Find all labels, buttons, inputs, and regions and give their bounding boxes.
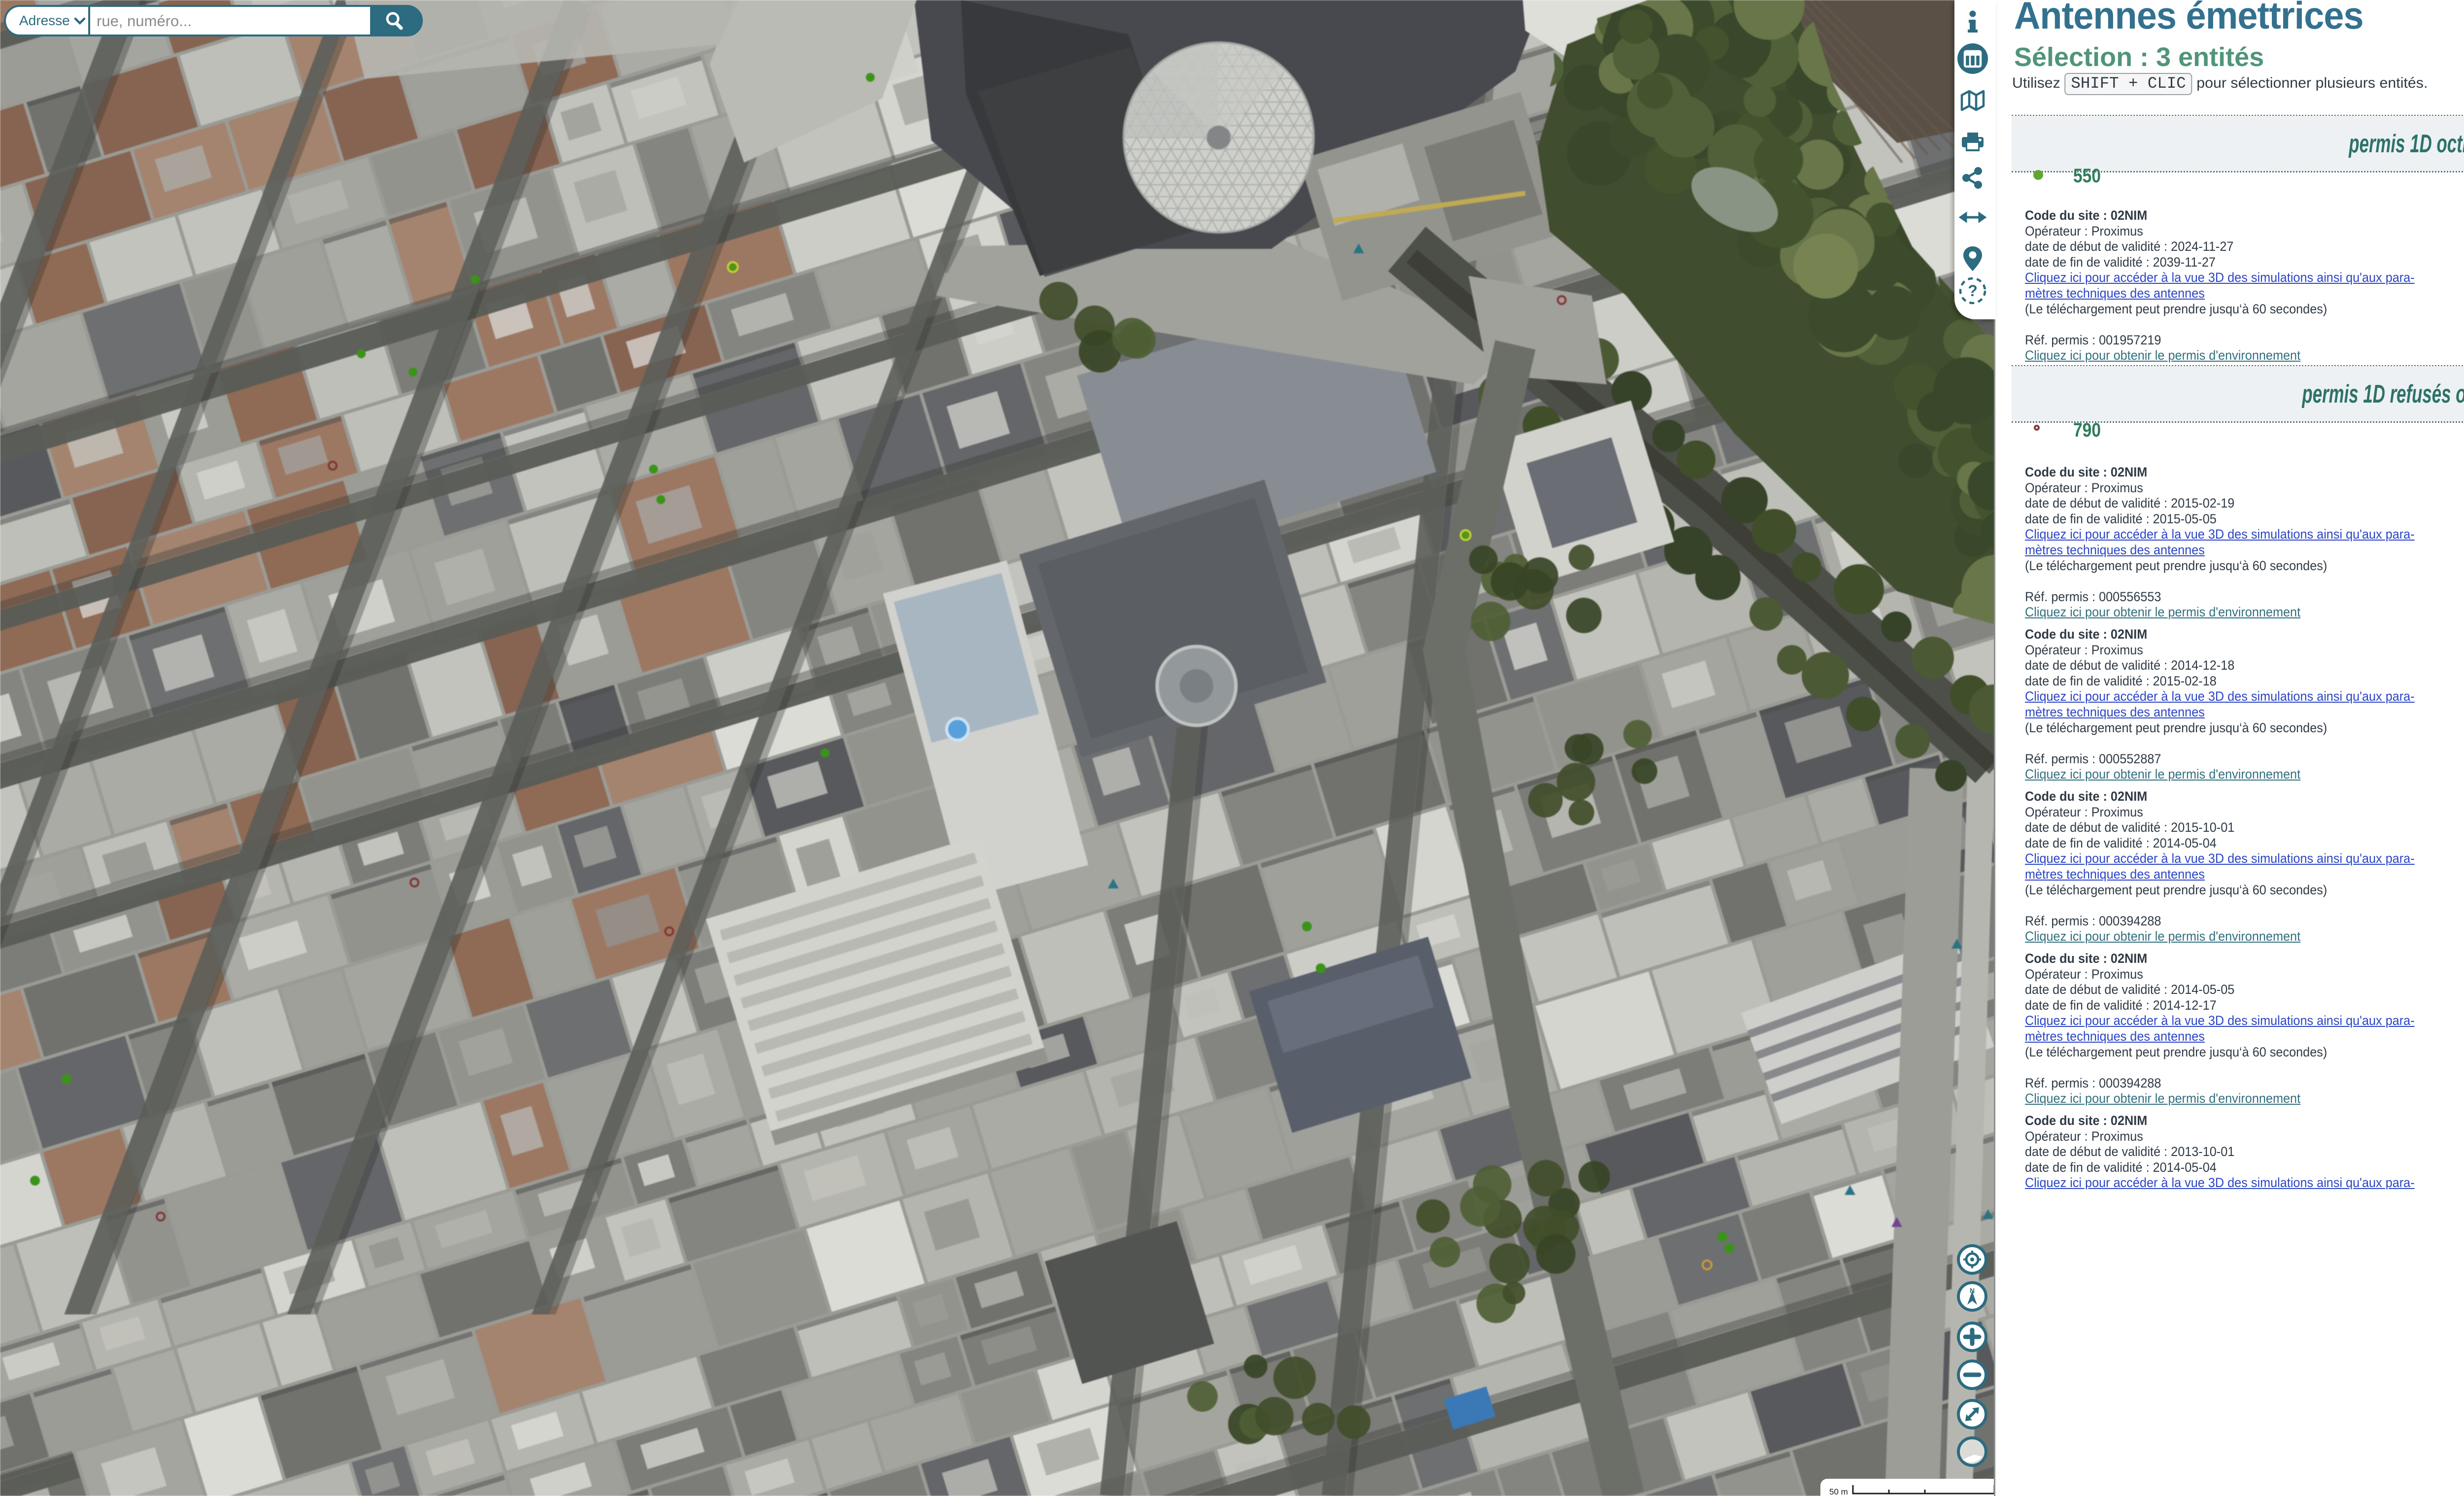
svg-text:Adresse: Adresse [19,13,70,28]
svg-text:rue, numéro...: rue, numéro... [97,12,192,30]
svg-text:?: ? [1968,282,1978,300]
